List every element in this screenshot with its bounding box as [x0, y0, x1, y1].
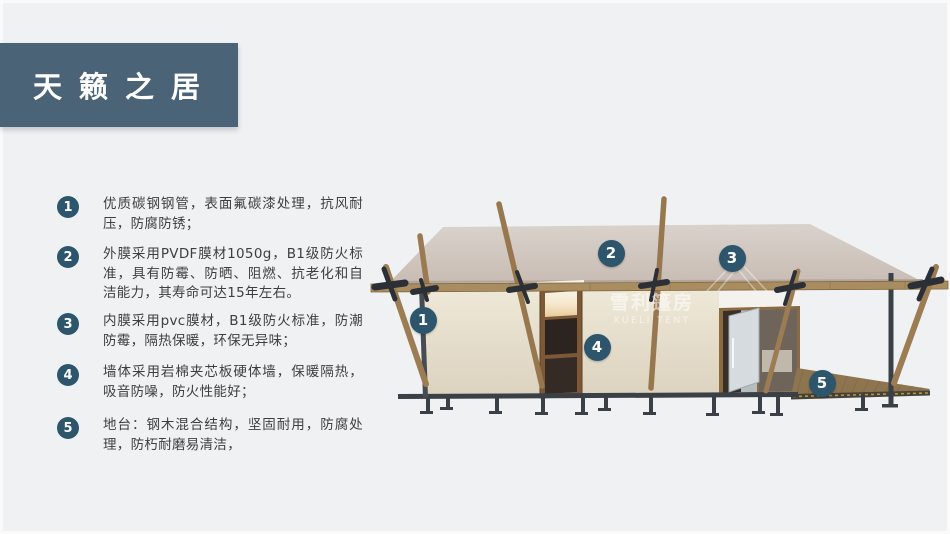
page-title: 天籁之居 [0, 64, 217, 106]
title-banner: 天籁之居 [0, 43, 238, 127]
feature-text: 地台：钢木混合结构，坚固耐用，防腐处理，防朽耐磨易清洁， [103, 416, 363, 455]
feature-item-5: 5 地台：钢木混合结构，坚固耐用，防腐处理，防朽耐磨易清洁， [57, 416, 369, 455]
feature-text: 优质碳钢钢管，表面氟碳漆处理，抗风耐压，防腐防锈； [103, 195, 363, 234]
feature-number-badge: 1 [57, 196, 79, 218]
feature-number-badge: 4 [57, 364, 79, 386]
callout-badge-2: 2 [598, 240, 625, 267]
feature-item-2: 2 外膜采用PVDF膜材1050g，B1级防火标准，具有防霉、防晒、阻燃、抗老化… [57, 245, 369, 304]
entrance-door [537, 280, 584, 398]
feature-number-badge: 3 [57, 313, 79, 335]
feature-number-badge: 2 [57, 246, 79, 268]
feature-item-1: 1 优质碳钢钢管，表面氟碳漆处理，抗风耐压，防腐防锈； [57, 195, 369, 234]
feature-item-4: 4 墙体采用岩棉夹芯板硬体墙，保暖隔热，吸音防噪，防火性能好； [57, 363, 369, 402]
callout-badge-1: 1 [410, 307, 437, 334]
callout-badge-3: 3 [719, 245, 746, 272]
feature-text: 内膜采用pvc膜材，B1级防火标准，防潮防霉，隔热保暖，环保无异味； [103, 312, 363, 351]
callout-badge-4: 4 [584, 334, 611, 361]
feature-text: 外膜采用PVDF膜材1050g，B1级防火标准，具有防霉、防晒、阻燃、抗老化和自… [103, 245, 363, 304]
slide-background: 天籁之居 1 优质碳钢钢管，表面氟碳漆处理，抗风耐压，防腐防锈； 2 外膜采用P… [0, 0, 950, 534]
feature-item-3: 3 内膜采用pvc膜材，B1级防火标准，防潮防霉，隔热保暖，环保无异味； [57, 312, 369, 351]
callout-badge-5: 5 [809, 370, 836, 397]
feature-number-badge: 5 [57, 417, 79, 439]
tent-render-image: 雪利篷房 XUELI TENT 1 2 3 4 5 [370, 196, 950, 444]
feature-text: 墙体采用岩棉夹芯板硬体墙，保暖隔热，吸音防噪，防火性能好； [103, 363, 363, 402]
tent-illustration [370, 196, 950, 444]
